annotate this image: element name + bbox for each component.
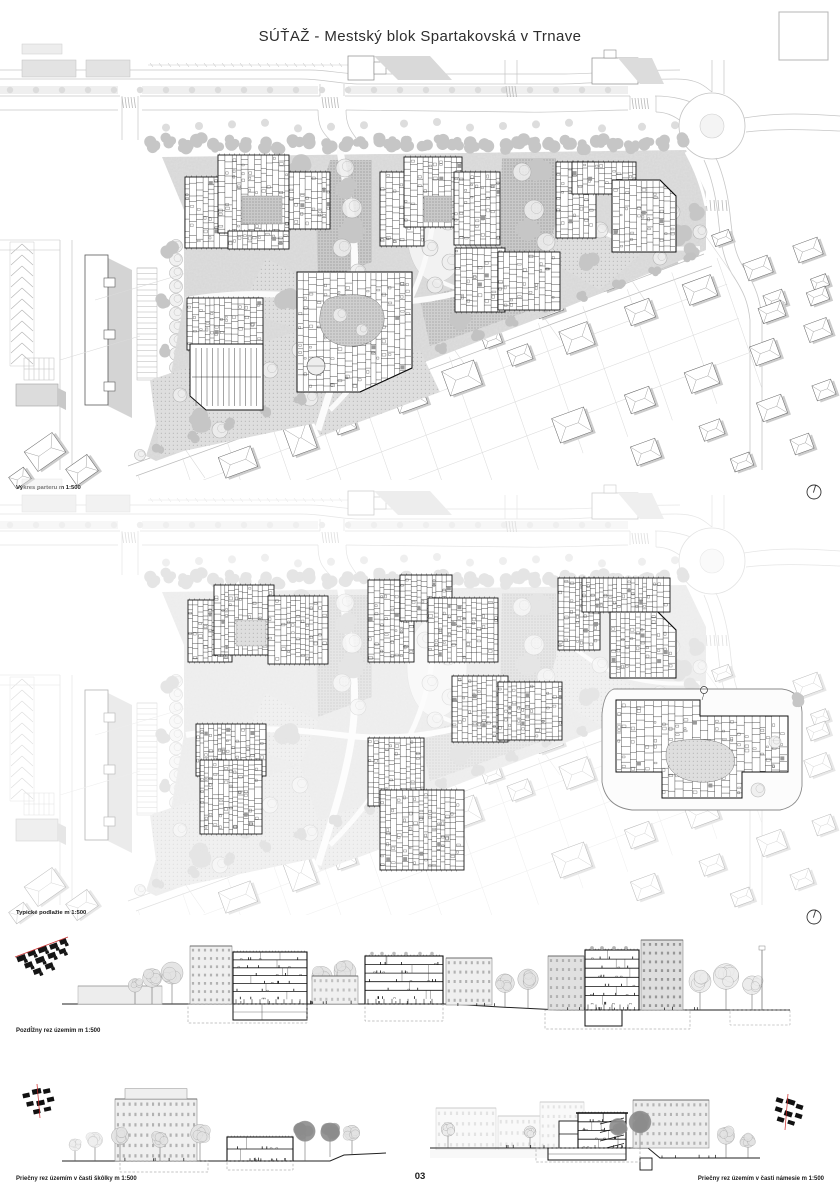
svg-text:SÚŤAŽ - Mestský blok Spartakov: SÚŤAŽ - Mestský blok Spartakovská v Trna…	[259, 28, 582, 45]
svg-text:Priečny rez územím v časti škô: Priečny rez územím v časti škôlky m 1:50…	[16, 1176, 137, 1182]
svg-text:Pozdĺžny rez územím m 1:500: Pozdĺžny rez územím m 1:500	[16, 1026, 101, 1034]
svg-text:03: 03	[415, 1171, 426, 1182]
svg-text:Priečny rez územím v časti nám: Priečny rez územím v časti námesie m 1:5…	[698, 1176, 825, 1182]
svg-text:Typické podlažie m 1:500: Typické podlažie m 1:500	[16, 910, 87, 916]
